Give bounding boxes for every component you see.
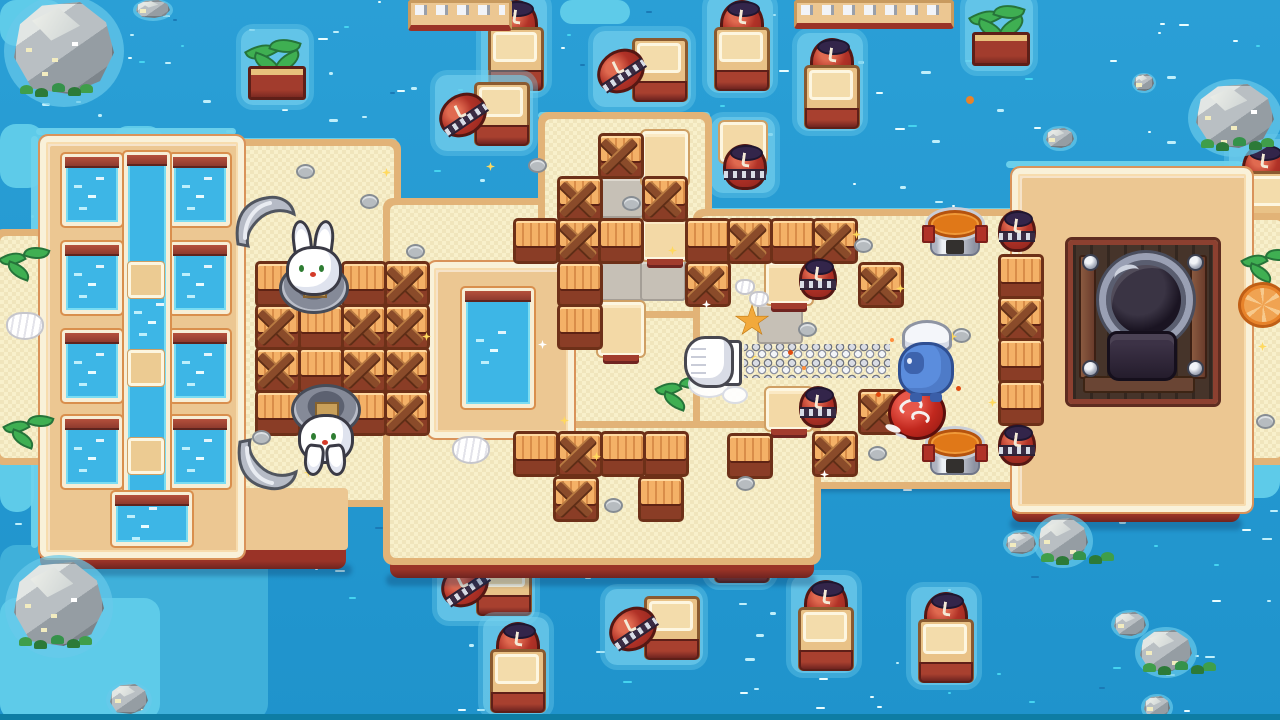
- stone-tile: [598, 259, 644, 301]
- pbox-part: [972, 32, 1030, 66]
- wooden-crate[interactable]: [513, 431, 559, 477]
- water-edge: [36, 128, 236, 135]
- game-viewport[interactable]: Top-down pixel-art island arena game sce…: [0, 0, 1280, 720]
- extended-spring-arm[interactable]: [744, 344, 890, 378]
- rbase-part: [477, 595, 531, 616]
- wooden-crate[interactable]: [598, 218, 644, 264]
- wooden-crate[interactable]: [638, 476, 684, 522]
- hface-part: [904, 352, 924, 374]
- fruit-slice: [1238, 282, 1280, 328]
- pebble: [1256, 414, 1275, 429]
- ph-part: [922, 225, 935, 243]
- palm-planter: [246, 34, 304, 100]
- water-pool: [62, 330, 122, 402]
- table-tile: [642, 218, 688, 260]
- bm2-part: [624, 616, 637, 632]
- bm2-part: [454, 102, 467, 118]
- metal-spoon-ornament: [234, 438, 298, 492]
- lid-part: [493, 32, 537, 62]
- rgrass-part: [1143, 663, 1156, 672]
- water-pool: [62, 154, 122, 226]
- rock: [1140, 630, 1192, 672]
- splatter-dot: [788, 350, 793, 355]
- rbase-part: [475, 125, 529, 146]
- cbody-part: [1107, 331, 1177, 381]
- rgrass-part: [19, 637, 32, 646]
- shallow-water-patch: [560, 0, 630, 24]
- rv-part: [1082, 360, 1099, 377]
- pebble: [528, 158, 547, 173]
- rock: [1196, 84, 1274, 148]
- channel-tile: [128, 262, 164, 298]
- rcrate-part: [490, 649, 546, 713]
- pebble: [854, 238, 873, 253]
- rock: [1006, 532, 1036, 554]
- rcrate-part: [918, 619, 974, 683]
- dock: [408, 0, 512, 31]
- wooden-crate[interactable]: [642, 176, 688, 222]
- floating-crate-raft[interactable]: [610, 594, 698, 660]
- rbear-part: [324, 443, 347, 477]
- bm2-part: [612, 58, 625, 74]
- stew-pot[interactable]: [926, 429, 984, 477]
- red-barrel[interactable]: [799, 386, 837, 428]
- rbase-part: [645, 639, 699, 660]
- bm2-part: [1260, 153, 1270, 168]
- bm2-part: [942, 601, 952, 616]
- wooden-crate[interactable]: [643, 431, 689, 477]
- rcrate-part: [714, 27, 770, 91]
- rock: [1134, 74, 1154, 91]
- floating-crate-raft[interactable]: [796, 580, 852, 668]
- pebble: [736, 476, 755, 491]
- wooden-crate[interactable]: [998, 254, 1044, 300]
- wooden-crate[interactable]: [858, 262, 904, 308]
- dust-puff: [722, 386, 748, 404]
- wooden-crate[interactable]: [384, 390, 430, 436]
- ps-part: [928, 210, 982, 238]
- sand-sparkle: [486, 162, 495, 171]
- splatter-dot: [890, 338, 894, 342]
- rgrass-part: [20, 85, 33, 94]
- wooden-crate[interactable]: [998, 296, 1044, 342]
- rv-part: [1187, 360, 1204, 377]
- table-tile: [598, 302, 644, 356]
- bar-part: [799, 258, 837, 300]
- rgrass-part: [1041, 553, 1054, 562]
- water-pool: [170, 330, 230, 402]
- bm2-part: [514, 631, 524, 646]
- wooden-crate[interactable]: [384, 261, 430, 307]
- lid-part: [495, 654, 539, 684]
- rbase-part: [919, 662, 973, 683]
- wooden-crate[interactable]: [727, 433, 773, 479]
- wooden-crate[interactable]: [384, 304, 430, 350]
- wooden-crate[interactable]: [600, 431, 646, 477]
- pbox-part: [248, 66, 306, 100]
- rock: [14, 2, 114, 94]
- floating-crate-raft[interactable]: [598, 36, 686, 102]
- splatter-dot: [966, 96, 974, 104]
- rbase-part: [805, 108, 859, 129]
- rock: [136, 0, 170, 18]
- game-world: [0, 0, 1280, 720]
- hft-part: [910, 393, 922, 402]
- pebble: [868, 446, 887, 461]
- pf-part: [946, 240, 965, 254]
- bar-part: [799, 386, 837, 428]
- pebble: [360, 194, 379, 209]
- ph-part: [975, 225, 988, 243]
- platform-extension: [226, 488, 348, 550]
- rbase-part: [633, 81, 687, 102]
- water-edge: [1006, 161, 1242, 168]
- red-barrel[interactable]: [998, 424, 1036, 466]
- floating-crate-raft[interactable]: [716, 122, 770, 188]
- wooden-crate[interactable]: [557, 176, 603, 222]
- em2-part: [910, 409, 931, 426]
- rv-part: [1082, 254, 1099, 271]
- bm2-part: [828, 47, 838, 62]
- cannon[interactable]: [1068, 240, 1218, 404]
- floating-crate-raft[interactable]: [916, 592, 972, 680]
- wooden-crate[interactable]: [557, 304, 603, 350]
- boxing-glove-icon[interactable]: [684, 332, 742, 388]
- wooden-crate[interactable]: [553, 476, 599, 522]
- palm-planter: [970, 0, 1028, 66]
- floating-crate-raft[interactable]: [440, 80, 528, 146]
- rbase-part: [491, 692, 545, 713]
- seashell: [452, 436, 490, 464]
- wooden-crate[interactable]: [685, 218, 731, 264]
- wooden-crate[interactable]: [557, 261, 603, 307]
- splatter-dot: [956, 386, 961, 391]
- bol-part: [415, 5, 505, 15]
- pebble: [406, 244, 425, 259]
- rbase-part: [799, 650, 853, 671]
- wooden-crate[interactable]: [341, 304, 387, 350]
- seashell: [6, 312, 44, 340]
- water-pool: [170, 416, 230, 488]
- screen-edge: [0, 714, 1280, 720]
- wooden-crate[interactable]: [998, 380, 1044, 426]
- wooden-crate[interactable]: [685, 261, 731, 307]
- floating-crate-raft[interactable]: [488, 622, 544, 710]
- channel-tile: [128, 350, 164, 386]
- channel-tile: [128, 438, 164, 474]
- white-rabbit[interactable]: [278, 218, 344, 314]
- lid-part: [923, 624, 967, 654]
- water-pool: [62, 416, 122, 488]
- bar-part: [723, 144, 767, 190]
- fingers-part: [691, 348, 706, 374]
- water-pool: [170, 242, 230, 314]
- floating-crate-raft[interactable]: [802, 38, 858, 126]
- white-rabbit[interactable]: [290, 384, 356, 480]
- water-pool: [112, 492, 192, 546]
- rbear-part: [302, 443, 325, 477]
- bm2-part: [822, 589, 832, 604]
- red-barrel[interactable]: [998, 210, 1036, 252]
- rv-part: [1187, 254, 1204, 271]
- rock: [1038, 518, 1088, 562]
- bm2-part: [741, 153, 751, 168]
- bar-part: [998, 210, 1036, 252]
- red-barrel[interactable]: [799, 258, 837, 300]
- rcrate-part: [798, 607, 854, 671]
- wooden-crate[interactable]: [557, 218, 603, 264]
- pebble: [604, 498, 623, 513]
- ph-part: [975, 444, 988, 462]
- wooden-crate[interactable]: [727, 218, 773, 264]
- bar-part: [998, 424, 1036, 466]
- lid-part: [809, 70, 853, 100]
- wooden-crate[interactable]: [812, 431, 858, 477]
- wooden-crate[interactable]: [598, 133, 644, 179]
- lid-part: [803, 612, 847, 642]
- stew-pot[interactable]: [926, 210, 984, 258]
- seaweed-tuft: [0, 242, 42, 276]
- pebble: [798, 322, 817, 337]
- splatter-dot: [802, 366, 806, 370]
- rgrass-part: [1201, 139, 1214, 148]
- pf-part: [946, 459, 965, 473]
- floating-crate-raft[interactable]: [712, 0, 768, 88]
- ph-part: [922, 444, 935, 462]
- bh-part: [724, 169, 766, 180]
- pebble: [296, 164, 315, 179]
- rock: [14, 562, 104, 646]
- rock: [1046, 128, 1074, 148]
- rock: [110, 684, 148, 714]
- rbase-part: [715, 70, 769, 91]
- pebble: [622, 196, 641, 211]
- bol-part: [801, 5, 947, 15]
- rcrate-part: [804, 65, 860, 129]
- splatter-dot: [876, 392, 881, 397]
- water-pool: [62, 242, 122, 314]
- wooden-crate[interactable]: [998, 338, 1044, 384]
- wooden-crate[interactable]: [513, 218, 559, 264]
- bm2-part: [512, 9, 522, 24]
- water-pool: [462, 288, 534, 408]
- lid-part: [719, 32, 763, 62]
- chef-hero[interactable]: [894, 320, 956, 404]
- seaweed-tuft: [4, 410, 46, 444]
- wooden-crate[interactable]: [384, 347, 430, 393]
- bm2-part: [738, 9, 748, 24]
- rbhead-part: [286, 246, 342, 296]
- water-pool: [170, 154, 230, 226]
- dock: [794, 0, 954, 29]
- seaweed-tuft: [1242, 244, 1280, 278]
